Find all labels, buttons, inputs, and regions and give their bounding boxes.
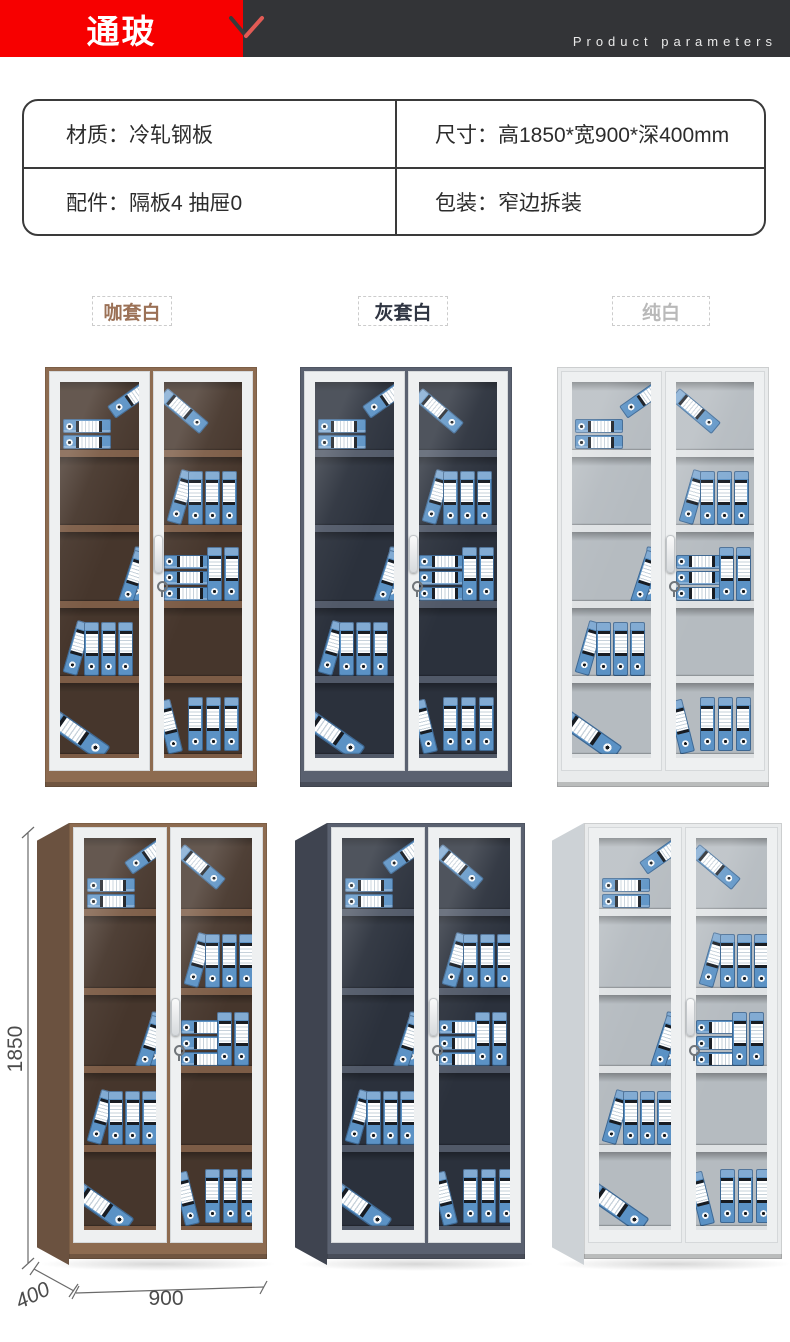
cabinet-door-right <box>408 371 509 771</box>
binder <box>599 1180 650 1230</box>
glass-panel <box>599 838 671 1230</box>
glass-panel <box>419 382 498 758</box>
glass-panel <box>181 838 253 1230</box>
binder <box>206 697 221 751</box>
binder <box>239 934 253 988</box>
binder <box>101 622 116 676</box>
cabinet-door-right <box>170 827 264 1243</box>
binder <box>630 622 645 676</box>
binder <box>575 435 623 449</box>
binder <box>63 435 111 449</box>
cabinet-gray-white-front-view <box>300 367 512 787</box>
binder <box>205 1169 220 1223</box>
binder <box>108 1091 123 1145</box>
door-handle <box>171 998 180 1036</box>
cabinet-door-right <box>665 371 766 771</box>
cabinet-door-left <box>561 371 662 771</box>
binder <box>481 1169 496 1223</box>
binder <box>754 934 768 988</box>
binder <box>318 419 366 433</box>
cabinet-side-panel <box>552 823 584 1265</box>
binder <box>188 697 203 751</box>
binder <box>315 708 366 758</box>
binder <box>575 419 623 433</box>
binder <box>419 699 438 755</box>
dimension-height-label: 1850 <box>4 1019 28 1079</box>
glass-panel <box>572 382 651 758</box>
binder <box>164 388 209 434</box>
binder <box>623 1091 638 1145</box>
glass-panel <box>342 838 414 1230</box>
binder <box>749 1012 764 1066</box>
keyhole <box>689 1045 700 1056</box>
binder <box>382 838 414 875</box>
binder <box>463 1169 478 1223</box>
binder <box>419 587 467 601</box>
cabinet-body <box>327 823 525 1259</box>
binder <box>241 1169 253 1223</box>
binder <box>224 697 239 751</box>
binder <box>499 1169 511 1223</box>
binder <box>676 699 695 755</box>
binder <box>736 697 751 751</box>
binder <box>217 1012 232 1066</box>
cabinet-door-right <box>428 827 522 1243</box>
binder <box>339 622 354 676</box>
binder <box>84 1180 135 1230</box>
binder <box>717 471 732 525</box>
binder <box>419 571 467 585</box>
binder <box>181 844 226 890</box>
cabinet-gray-white-angled-view <box>295 823 525 1265</box>
cabinet-door-left <box>588 827 682 1243</box>
binder <box>756 1169 768 1223</box>
binder <box>602 894 650 908</box>
binder <box>419 388 464 434</box>
cabinet-body <box>584 823 782 1259</box>
binder <box>718 697 733 751</box>
binder <box>223 1169 238 1223</box>
binder <box>439 844 484 890</box>
binder <box>734 471 749 525</box>
binder <box>720 934 735 988</box>
glass-panel <box>84 838 156 1230</box>
binder <box>87 894 135 908</box>
glass-panel <box>676 382 755 758</box>
cabinet-door-left <box>304 371 405 771</box>
binder <box>492 1012 507 1066</box>
cabinet-cafe-white-front-view <box>45 367 257 787</box>
keyhole <box>412 581 423 592</box>
binder <box>462 547 477 601</box>
cabinet-pure-white-front-view <box>557 367 769 787</box>
binder <box>222 934 237 988</box>
binder <box>181 1171 200 1227</box>
binder <box>207 547 222 601</box>
binder <box>443 471 458 525</box>
binder <box>188 471 203 525</box>
keyhole <box>432 1045 443 1056</box>
binder <box>356 622 371 676</box>
product-detail-page: 通玻 Product parameters 材质：冷轧钢板 尺寸：高1850*宽… <box>0 0 790 1342</box>
binder <box>383 1091 398 1145</box>
glass-panel <box>696 838 768 1230</box>
binder <box>107 382 139 419</box>
binder <box>84 622 99 676</box>
binder <box>419 555 467 569</box>
binder <box>479 547 494 601</box>
door-handle <box>409 535 418 573</box>
glass-panel <box>164 382 243 758</box>
binder <box>460 471 475 525</box>
door-handle <box>686 998 695 1036</box>
door-handle <box>666 535 675 573</box>
binder <box>234 1012 249 1066</box>
binder <box>124 838 156 875</box>
binder <box>443 697 458 751</box>
keyhole <box>174 1045 185 1056</box>
binder <box>477 471 492 525</box>
binder <box>345 894 393 908</box>
binder <box>676 587 724 601</box>
cabinet-door-left <box>49 371 150 771</box>
binder <box>719 547 734 601</box>
binder <box>164 555 212 569</box>
binder <box>366 1091 381 1145</box>
cabinet-door-right <box>153 371 254 771</box>
binder <box>142 1091 156 1145</box>
binder <box>676 388 721 434</box>
binder <box>676 555 724 569</box>
binder <box>125 1091 140 1145</box>
dimension-width-label: 900 <box>118 1287 214 1311</box>
cabinet-side-panel <box>295 823 327 1265</box>
binder <box>732 1012 747 1066</box>
cabinet-side-panel <box>37 823 69 1265</box>
binder <box>696 1171 715 1227</box>
binder <box>737 934 752 988</box>
cabinet-door-right <box>685 827 779 1243</box>
door-handle <box>429 998 438 1036</box>
glass-panel <box>315 382 394 758</box>
binder <box>602 878 650 892</box>
binder <box>696 844 741 890</box>
keyhole <box>157 581 168 592</box>
binder <box>639 838 671 875</box>
binder <box>461 697 476 751</box>
binder <box>619 382 651 419</box>
cabinet-door-left <box>73 827 167 1243</box>
binder <box>164 699 183 755</box>
binder <box>676 571 724 585</box>
binder <box>205 471 220 525</box>
binder <box>373 622 388 676</box>
binder <box>342 1180 393 1230</box>
binder <box>164 571 212 585</box>
binder <box>613 622 628 676</box>
binder <box>318 435 366 449</box>
binder <box>497 934 511 988</box>
binder <box>60 708 111 758</box>
binder <box>164 587 212 601</box>
binder <box>345 878 393 892</box>
binder <box>475 1012 490 1066</box>
binder <box>400 1091 414 1145</box>
binder <box>463 934 478 988</box>
binder <box>736 547 751 601</box>
cabinet-pure-white-angled-view <box>552 823 782 1265</box>
binder <box>205 934 220 988</box>
binder <box>118 622 133 676</box>
binder <box>63 419 111 433</box>
binder <box>224 547 239 601</box>
binder <box>439 1171 458 1227</box>
keyhole <box>669 581 680 592</box>
cabinet-images <box>0 0 790 1342</box>
glass-panel <box>439 838 511 1230</box>
binder <box>640 1091 655 1145</box>
cabinet-body <box>69 823 267 1259</box>
binder <box>480 934 495 988</box>
cabinet-cafe-white-angled-view <box>37 823 267 1265</box>
door-handle <box>154 535 163 573</box>
binder <box>222 471 237 525</box>
binder <box>596 622 611 676</box>
cabinet-door-left <box>331 827 425 1243</box>
glass-panel <box>60 382 139 758</box>
binder <box>720 1169 735 1223</box>
binder <box>572 708 623 758</box>
binder <box>479 697 494 751</box>
binder <box>700 697 715 751</box>
binder <box>362 382 394 419</box>
binder <box>657 1091 671 1145</box>
binder <box>87 878 135 892</box>
binder <box>700 471 715 525</box>
binder <box>738 1169 753 1223</box>
